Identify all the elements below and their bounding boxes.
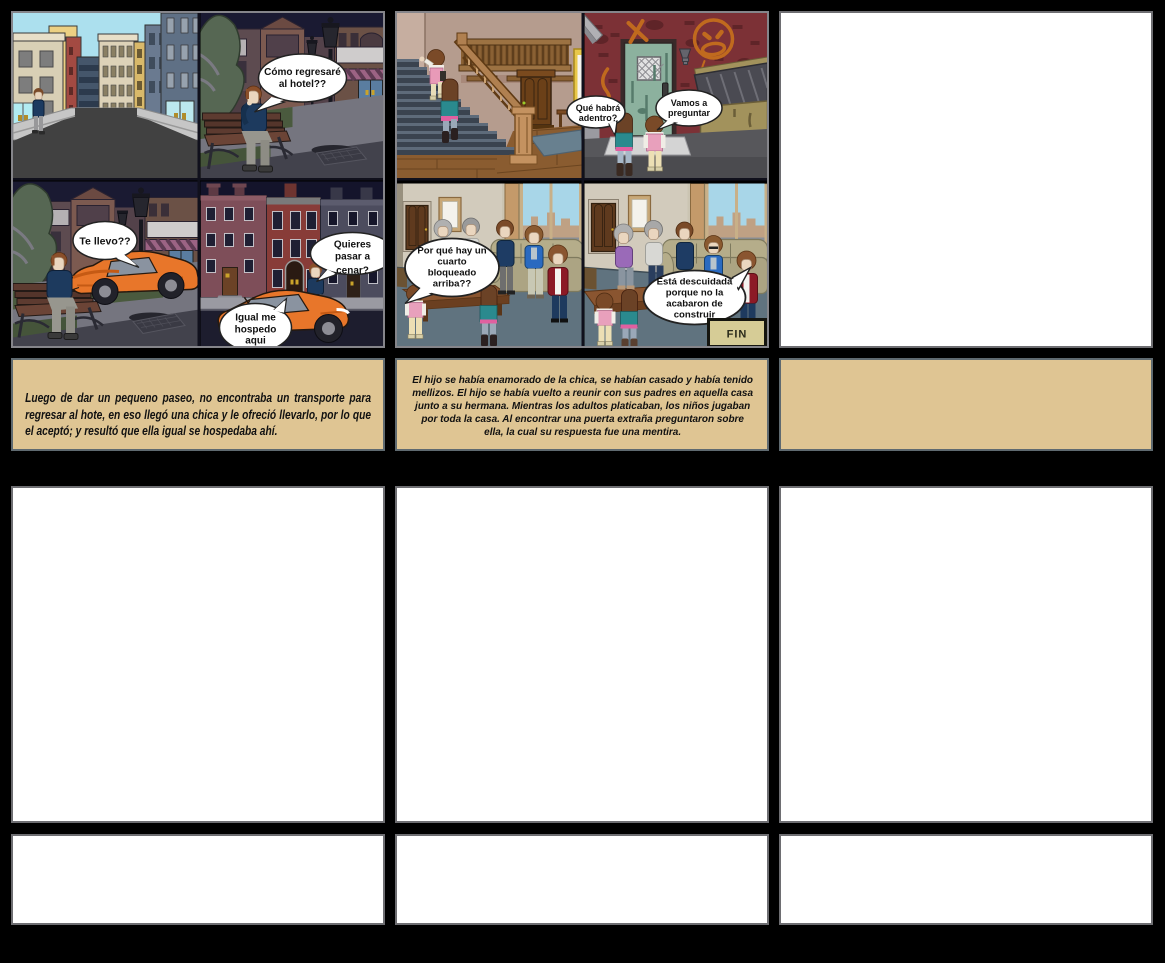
svg-text:Está descuidada: Está descuidada <box>657 277 733 288</box>
svg-text:preguntar: preguntar <box>668 108 711 118</box>
svg-text:al hotel??: al hotel?? <box>279 79 326 90</box>
svg-text:Cómo regresaré: Cómo regresaré <box>264 67 341 78</box>
svg-text:FIN: FIN <box>727 329 748 341</box>
svg-text:Quieres: Quieres <box>334 240 372 251</box>
svg-text:adentro?: adentro? <box>579 113 618 123</box>
svg-text:arriba??: arriba?? <box>433 279 472 290</box>
svg-text:acabaron de: acabaron de <box>666 299 723 310</box>
svg-text:Vamos a: Vamos a <box>671 98 709 108</box>
svg-text:porque no la: porque no la <box>666 288 724 299</box>
svg-text:hospedo: hospedo <box>235 325 277 336</box>
svg-text:Por qué hay un: Por qué hay un <box>417 246 486 257</box>
svg-text:aqui: aqui <box>245 336 266 347</box>
svg-text:Te llevo??: Te llevo?? <box>79 236 130 248</box>
svg-text:Igual me: Igual me <box>235 313 276 324</box>
svg-text:pasar a: pasar a <box>335 252 370 263</box>
svg-text:bloqueado: bloqueado <box>428 268 477 279</box>
svg-text:cuarto: cuarto <box>437 257 466 268</box>
svg-text:Qué habrá: Qué habrá <box>576 103 622 113</box>
